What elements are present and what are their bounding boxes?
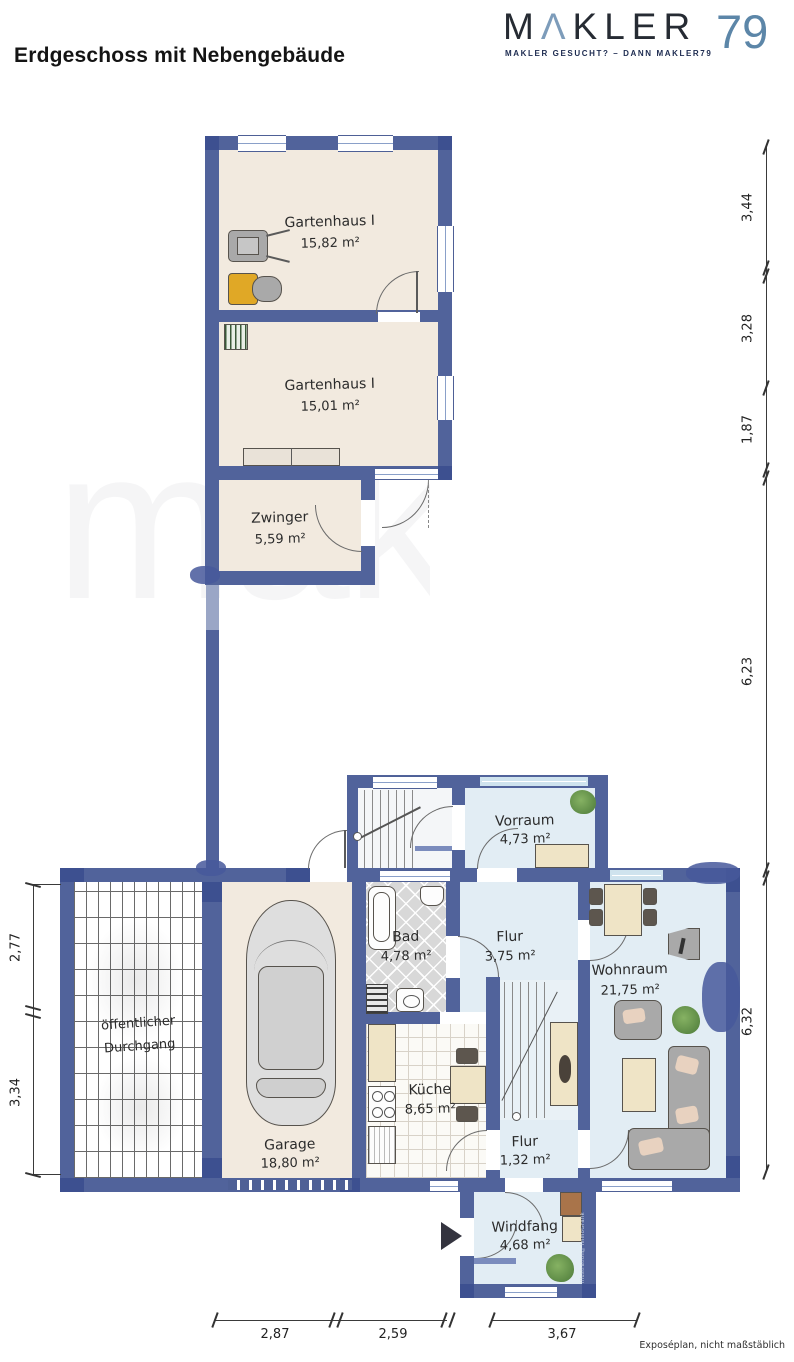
logo-tagline: MAKLER GESUCHT? – DANN MAKLER79 (505, 49, 712, 58)
window (437, 376, 454, 420)
door-opening (452, 805, 465, 850)
wall-corner (438, 136, 452, 150)
window (338, 135, 393, 152)
dimension-line (766, 147, 767, 1172)
window (238, 135, 286, 152)
bench-divider (291, 448, 292, 466)
watercolor-blob (196, 860, 226, 876)
room-label-kueche: Küche 8,65 m² (380, 1080, 481, 1120)
room-area: 21,75 m² (575, 980, 685, 1002)
dimension-line (33, 885, 34, 1175)
door-leaf (416, 271, 418, 313)
stair-tread (544, 982, 545, 1118)
room-label-durchgang: öffentlicher Durchgang (91, 1009, 186, 1062)
coffee-table (622, 1058, 656, 1112)
sink-basin (403, 995, 420, 1008)
plant-icon (546, 1254, 574, 1282)
stair-tread (404, 790, 405, 868)
sink-icon (396, 988, 424, 1012)
stair-tread (512, 982, 513, 1118)
dimension-label: 6,23 (741, 650, 756, 694)
scale-disclaimer: Exposéplan, nicht maßstäblich (560, 1340, 785, 1351)
sideboard-icon (550, 1022, 578, 1106)
door-threshold (474, 1258, 516, 1264)
stair-tread (364, 790, 365, 868)
window (610, 870, 663, 880)
room-label-gartenhaus-1: Gartenhaus I 15,82 m² (249, 210, 410, 256)
stair-tread (388, 790, 389, 868)
room-label-flur-klein: Flur 1,32 m² (480, 1132, 571, 1171)
stair-tread (396, 790, 397, 868)
wall-corner (205, 136, 219, 150)
dining-table (604, 884, 642, 936)
sofa-icon (628, 1128, 710, 1170)
dimension-tick (448, 1312, 455, 1328)
wall (347, 788, 358, 868)
armchair-icon (614, 1000, 662, 1040)
window (505, 1286, 557, 1298)
room-name: Flur (480, 1132, 570, 1153)
wall (202, 882, 222, 1178)
wall (60, 882, 74, 1178)
wall (352, 882, 366, 1178)
door-opening (310, 868, 347, 882)
logo-letter-m: M (503, 6, 541, 47)
chair-icon (456, 1048, 478, 1064)
room-label-flur: Flur 3,75 m² (460, 927, 561, 967)
wall-corner (582, 1284, 596, 1298)
dimension-label: 2,77 (9, 926, 24, 970)
room-name: Bad (366, 927, 446, 949)
window (375, 468, 438, 480)
window (373, 776, 437, 789)
watercolor-blob (702, 962, 740, 1032)
wall-corner (60, 1178, 84, 1192)
window (430, 1180, 458, 1192)
stair-start-node (512, 1112, 521, 1121)
room-label-windfang: Windfang 4,68 m² (470, 1217, 581, 1256)
door-opening (361, 500, 375, 546)
door-arc (308, 830, 347, 869)
window (437, 226, 454, 292)
wall-corner (202, 882, 222, 902)
room-label-garage: Garage 18,80 m² (240, 1135, 341, 1174)
dimension-label: 3,28 (741, 307, 756, 351)
wall (595, 775, 608, 882)
floor-plan-page: Erdgeschoss mit Nebengebäude MΛKLER 79 M… (0, 0, 794, 1362)
car-roof (258, 966, 324, 1070)
dimension-label: 6,32 (741, 1000, 756, 1044)
dashed-line (428, 480, 430, 528)
watercolor-wash (95, 1055, 185, 1160)
watercolor-blob (190, 566, 220, 584)
brand-logo: MΛKLER (503, 6, 697, 48)
cushion (674, 1055, 699, 1076)
vase-icon (559, 1055, 571, 1083)
car-rear (256, 1078, 326, 1098)
dimension-label: 1,87 (741, 408, 756, 452)
toilet-icon (420, 886, 444, 906)
room-area: 1,32 m² (480, 1151, 570, 1171)
wardrobe-icon (560, 1192, 582, 1216)
hose-reel-icon (224, 324, 248, 350)
dimension-label: 3,44 (741, 186, 756, 230)
room-label-wohnraum: Wohnraum 21,75 m² (574, 959, 685, 1002)
room-area: 8,65 m² (380, 1099, 480, 1120)
wall-corner (286, 868, 310, 882)
room-area: 15,82 m² (250, 232, 410, 256)
chair-icon (589, 888, 603, 905)
logo-letter-a: Λ (541, 6, 573, 47)
chair-icon (643, 888, 657, 905)
room-label-zwinger: Zwinger 5,59 m² (214, 506, 345, 551)
wall-post (438, 466, 452, 480)
door-arc (382, 480, 429, 528)
stair-tread (536, 982, 537, 1118)
cushion (675, 1105, 699, 1125)
dimension-label: 2,87 (245, 1327, 305, 1342)
chair-icon (589, 909, 603, 926)
chair-icon (643, 909, 657, 926)
door-opening (578, 920, 590, 960)
watercolor-blob (686, 862, 740, 884)
window (380, 870, 450, 882)
door-threshold (415, 846, 452, 851)
logo-number: 79 (716, 8, 768, 55)
door-opening (578, 1130, 590, 1168)
room-area: 4,68 m² (470, 1235, 580, 1255)
dimension-label: 3,34 (9, 1071, 24, 1115)
room-label-bad: Bad 4,78 m² (366, 927, 447, 967)
lawn-mower-seat-icon (252, 276, 282, 302)
room-area: 4,73 m² (475, 830, 575, 850)
room-label-gartenhaus-2: Gartenhaus I 15,01 m² (249, 373, 410, 419)
door-opening (477, 868, 517, 882)
room-area: 15,01 m² (250, 395, 410, 419)
plant-icon (672, 1006, 700, 1034)
stair-start-node (353, 832, 362, 841)
wall-corner (726, 1156, 740, 1178)
room-name: Flur (460, 927, 560, 949)
room-area: 18,80 m² (240, 1154, 340, 1174)
kitchen-sink-unit (368, 1126, 396, 1164)
wall (205, 571, 375, 585)
garage-door (228, 1180, 352, 1190)
dimension-tick (762, 1164, 769, 1180)
door-leaf (344, 830, 346, 868)
room-name: Küche (380, 1080, 480, 1102)
cushion (622, 1008, 646, 1025)
window (602, 1180, 672, 1192)
wall (452, 868, 608, 882)
wall-corner (60, 868, 84, 882)
page-title: Erdgeschoss mit Nebengebäude (14, 44, 345, 68)
car-icon (246, 900, 336, 1126)
entrance-arrow-icon (441, 1222, 462, 1250)
stair-tread (520, 982, 521, 1118)
illustration-credit: Illustration©ImmoGrafik (580, 1212, 586, 1283)
door-opening (505, 1178, 543, 1192)
wall-corner (202, 1158, 222, 1178)
room-area: 4,78 m² (366, 947, 446, 967)
room-name: Wohnraum (574, 959, 685, 983)
wall (60, 868, 310, 882)
room-area: 3,75 m² (460, 946, 560, 967)
wall-corner (460, 1284, 474, 1298)
stair-tread (412, 790, 413, 868)
door-opening (440, 1012, 486, 1024)
kitchen-counter (368, 1024, 396, 1082)
stair-tread (380, 790, 381, 868)
logo-letters-kler: KLER (573, 6, 698, 47)
radiator-icon (366, 984, 388, 1014)
room-area: 5,59 m² (215, 528, 345, 552)
cushion (638, 1137, 665, 1157)
window (480, 777, 588, 786)
wall-light-segment (206, 585, 219, 630)
dimension-line (492, 1320, 637, 1321)
dimension-label: 2,59 (363, 1327, 423, 1342)
room-label-vorraum: Vorraum 4,73 m² (475, 811, 576, 850)
